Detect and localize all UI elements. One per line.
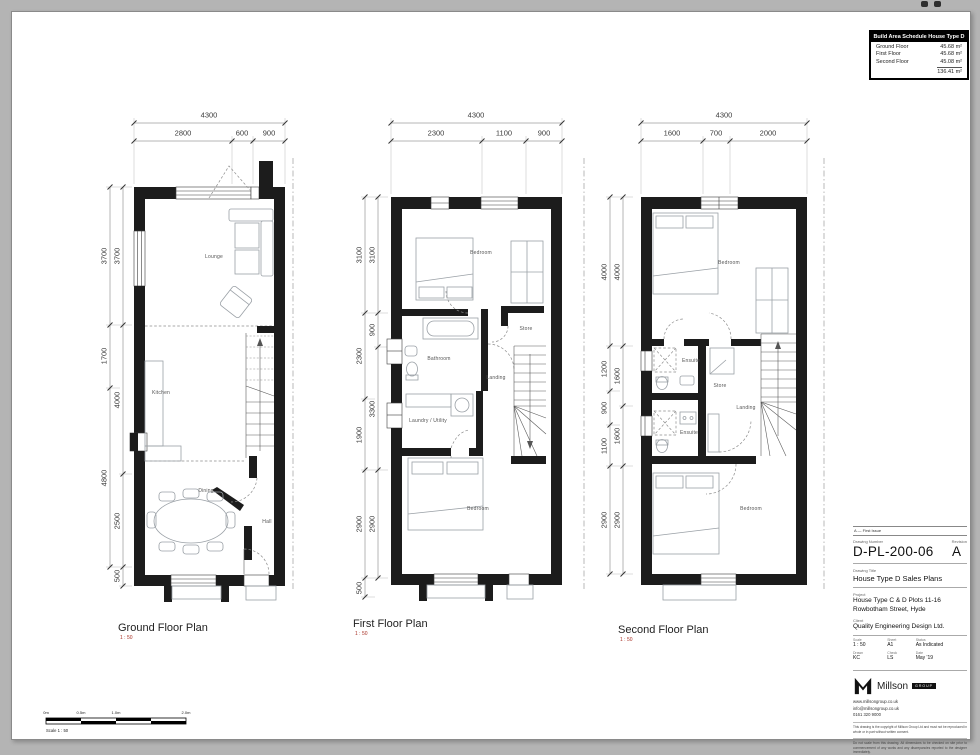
scale-tick-label: 0.5m xyxy=(77,710,86,715)
room-label-bedroom-2: Bedroom xyxy=(740,506,762,512)
dim-label: 2900 xyxy=(613,512,622,529)
scale-caption: Scale 1 : 50 xyxy=(46,728,68,733)
dim-label: 3300 xyxy=(368,401,377,418)
room-label-store: Store xyxy=(520,326,533,332)
dim-label: 2900 xyxy=(600,512,609,529)
second-floor-plan-title: Second Floor Plan 1 : 50 xyxy=(618,624,709,643)
room-label-landing: Landing xyxy=(486,375,505,381)
room-label-lounge: Lounge xyxy=(205,254,223,260)
dim-label: 1200 xyxy=(600,361,609,378)
scale-tick-label: 1.0m xyxy=(112,710,121,715)
scale-tick-label: 2.0m xyxy=(182,710,191,715)
logo-name: Millson xyxy=(877,681,908,692)
scale-value: 1 : 50 xyxy=(853,642,887,648)
dim-label: 900 xyxy=(600,402,609,415)
disclaimer-2: Do not scale from this drawing. All dime… xyxy=(853,738,967,754)
dim-label: 1600 xyxy=(613,368,622,385)
build-area-schedule: Build Area Schedule House Type D Ground … xyxy=(869,30,969,80)
logo-sub: GROUP xyxy=(912,683,936,689)
drawing-number: D-PL-200-06 xyxy=(853,544,934,559)
dim-label: 900 xyxy=(368,324,377,337)
dim-label: 3100 xyxy=(355,247,364,264)
second-floor-drawing xyxy=(596,106,836,606)
dim-label: 4800 xyxy=(100,470,109,487)
checked-value: LS xyxy=(887,655,916,661)
dim-label: 700 xyxy=(710,129,723,138)
dim-label: 1100 xyxy=(600,438,609,454)
room-label-hall: Hall xyxy=(262,519,271,525)
revision-note: A — First Issue xyxy=(853,526,967,536)
dim-label: 4300 xyxy=(716,111,733,120)
ground-floor-plan: 4300 2800 600 900 3700 1700 4800 3700 40… xyxy=(96,106,306,606)
scale-tick-label: 0m xyxy=(43,710,49,715)
drawing-sheet: Build Area Schedule House Type D Ground … xyxy=(11,11,971,740)
dim-label: 1600 xyxy=(613,428,622,445)
dim-label: 4000 xyxy=(600,264,609,281)
dim-label: 500 xyxy=(113,570,122,583)
first-floor-plan: 4300 2300 1100 900 3100 2300 1900 2900 5… xyxy=(351,106,591,606)
dim-label: 3100 xyxy=(368,247,377,264)
dim-label: 2900 xyxy=(368,516,377,533)
dim-label: 1900 xyxy=(355,427,364,444)
project-line-2: Rowbotham Street, Hyde xyxy=(853,606,967,615)
drawing-title: House Type D Sales Plans xyxy=(853,574,967,583)
first-floor-drawing xyxy=(351,106,591,606)
graphic-scale-bar: 0m 0.5m 1.0m 2.0m Scale 1 : 50 xyxy=(32,710,202,740)
dim-label: 4300 xyxy=(201,111,218,120)
dim-label: 2900 xyxy=(355,516,364,533)
drawing-title-label: Drawing Title xyxy=(853,568,967,573)
first-floor-plan-title: First Floor Plan 1 : 50 xyxy=(353,618,428,637)
schedule-title: Build Area Schedule House Type D xyxy=(871,32,967,42)
schedule-row: Ground Floor45.68 m² xyxy=(871,42,967,50)
status-value: As Indicated xyxy=(916,642,967,648)
room-label-bedroom-2: Bedroom xyxy=(467,506,489,512)
contact-phone: 0161 320 9000 xyxy=(853,712,967,718)
room-label-bedroom: Bedroom xyxy=(470,250,492,256)
dim-label: 1600 xyxy=(664,129,681,138)
room-label-bathroom: Bathroom xyxy=(427,356,450,362)
second-floor-plan: 4300 1600 700 2000 4000 1200 900 1100 29… xyxy=(596,106,836,606)
company-logo: Millson GROUP xyxy=(853,670,967,696)
room-label-landing: Landing xyxy=(736,405,755,411)
revision-value: A xyxy=(952,544,961,559)
dim-label: 2500 xyxy=(113,513,122,530)
room-label-ensuite-2: Ensuite xyxy=(680,430,698,436)
schedule-row: First Floor45.68 m² xyxy=(871,50,967,58)
dim-label: 2300 xyxy=(355,348,364,365)
browser-artifact xyxy=(921,1,928,7)
sheet-value: A1 xyxy=(887,642,916,648)
dim-label: 900 xyxy=(263,129,276,138)
dim-label: 1700 xyxy=(100,348,109,365)
room-label-dining: Dining xyxy=(198,488,213,494)
drawn-value: KC xyxy=(853,655,887,661)
title-block: A — First Issue Drawing Number D-PL-200-… xyxy=(853,526,967,755)
room-label-laundry: Laundry / Utility xyxy=(409,418,447,424)
title-block-grid: Scale1 : 50 SheetA1 StatusAs Indicated D… xyxy=(853,635,967,664)
dim-label: 600 xyxy=(236,129,249,138)
room-label-bedroom: Bedroom xyxy=(718,260,740,266)
browser-artifact xyxy=(934,1,941,7)
room-label-store: Store xyxy=(714,383,727,389)
dim-label: 4000 xyxy=(613,264,622,281)
dim-label: 4300 xyxy=(468,111,485,120)
disclaimer-1: This drawing is the copyright of Millson… xyxy=(853,722,967,734)
dim-label: 4000 xyxy=(113,392,122,409)
dim-label: 900 xyxy=(538,129,551,138)
client-name: Quality Engineering Design Ltd. xyxy=(853,623,967,632)
millson-m-icon xyxy=(853,676,873,696)
dim-label: 3700 xyxy=(113,248,122,265)
dim-label: 2000 xyxy=(760,129,777,138)
schedule-total: 136.41 m² xyxy=(871,65,967,78)
schedule-row: Second Floor45.08 m² xyxy=(871,57,967,65)
dim-label: 1100 xyxy=(496,129,512,138)
project-line-1: House Type C & D Plots 11-16 xyxy=(853,597,967,606)
dim-label: 2300 xyxy=(428,129,445,138)
ground-floor-plan-title: Ground Floor Plan 1 : 50 xyxy=(118,622,208,641)
dim-label: 500 xyxy=(355,582,364,595)
room-label-ensuite: Ensuite xyxy=(682,358,700,364)
dim-label: 2800 xyxy=(175,129,192,138)
dim-label: 3700 xyxy=(100,248,109,265)
ground-floor-drawing xyxy=(96,106,306,606)
date-value: May '19 xyxy=(916,655,967,661)
room-label-kitchen: Kitchen xyxy=(152,390,170,396)
